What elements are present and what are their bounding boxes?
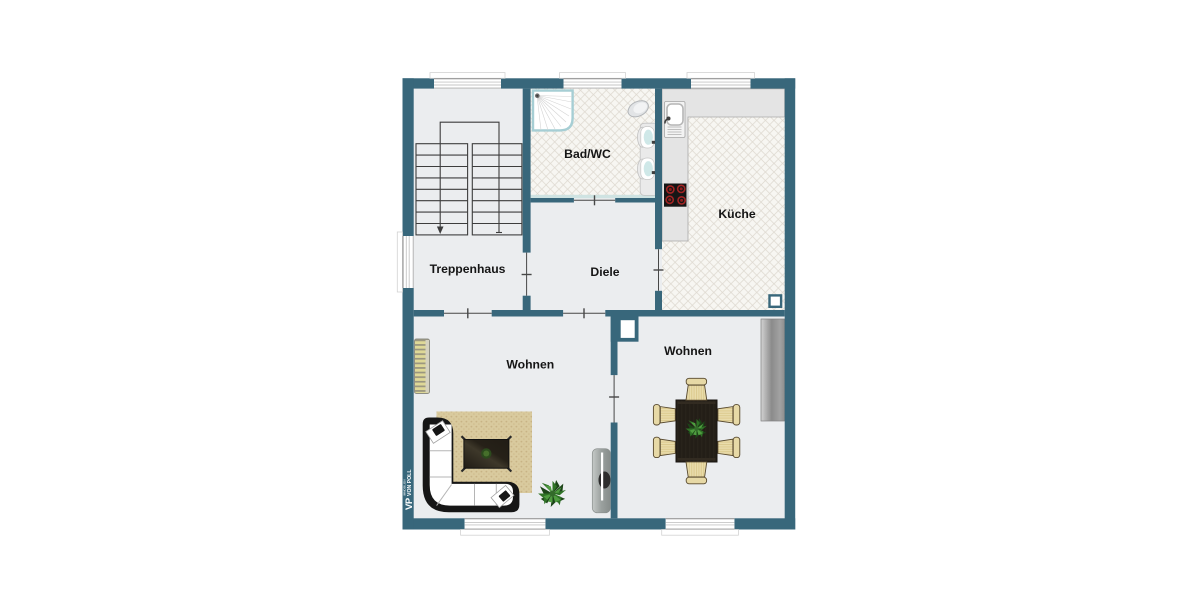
svg-text:VON POLL: VON POLL bbox=[407, 469, 413, 496]
svg-text:Diele: Diele bbox=[590, 265, 619, 279]
svg-text:Treppenhaus: Treppenhaus bbox=[430, 262, 506, 276]
svg-text:IMMOBILIEN: IMMOBILIEN bbox=[403, 480, 407, 496]
svg-text:Bad/WC: Bad/WC bbox=[564, 147, 611, 161]
svg-text:Wohnen: Wohnen bbox=[506, 358, 554, 372]
svg-text:Wohnen: Wohnen bbox=[664, 344, 712, 358]
svg-text:VP: VP bbox=[404, 497, 415, 510]
svg-text:Küche: Küche bbox=[718, 207, 755, 221]
